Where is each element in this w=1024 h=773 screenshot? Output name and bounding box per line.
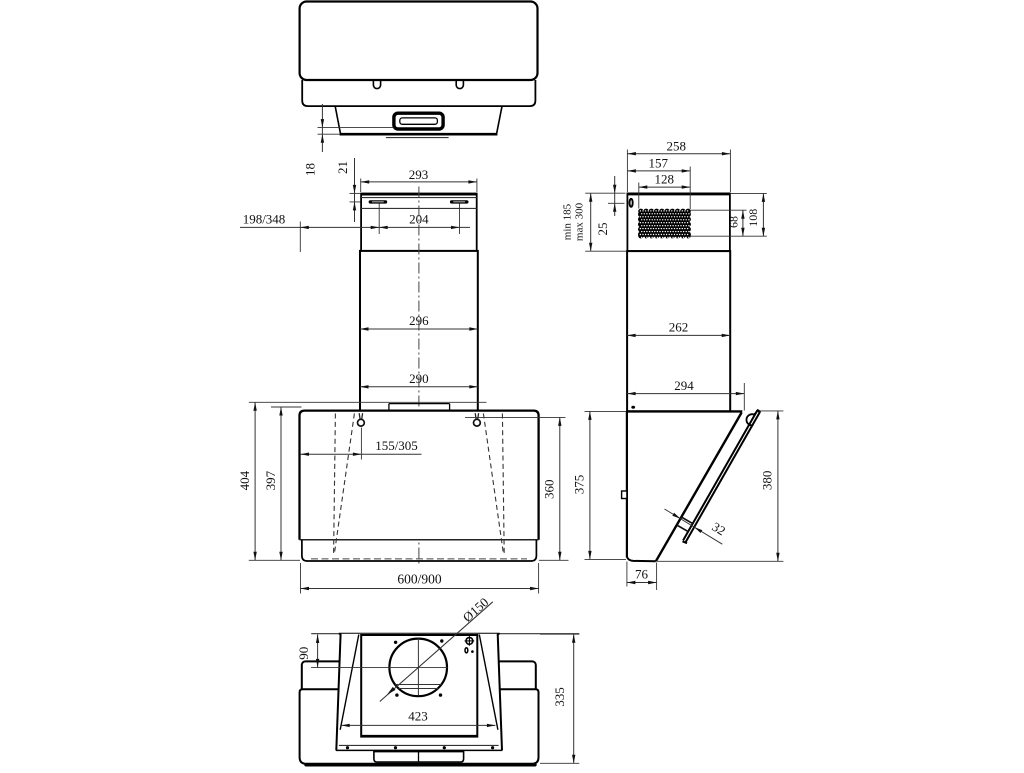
svg-text:600/900: 600/900 (397, 572, 442, 587)
svg-text:375: 375 (572, 475, 587, 495)
svg-text:21: 21 (335, 161, 350, 174)
svg-text:min 185: min 185 (562, 203, 574, 240)
svg-text:76: 76 (635, 567, 649, 582)
svg-text:198/348: 198/348 (243, 211, 286, 226)
svg-text:290: 290 (409, 371, 429, 386)
svg-text:360: 360 (541, 480, 556, 500)
svg-text:68: 68 (727, 216, 741, 228)
svg-text:258: 258 (667, 139, 687, 154)
svg-text:404: 404 (237, 470, 252, 490)
svg-text:204: 204 (409, 212, 429, 227)
svg-text:155/305: 155/305 (375, 438, 418, 453)
svg-text:397: 397 (263, 470, 278, 490)
svg-text:90: 90 (296, 647, 311, 660)
svg-text:296: 296 (409, 313, 429, 328)
svg-text:max 300: max 300 (574, 202, 586, 241)
svg-text:128: 128 (655, 171, 675, 186)
svg-text:18: 18 (303, 163, 318, 176)
svg-text:380: 380 (759, 471, 774, 491)
svg-text:157: 157 (649, 155, 669, 170)
svg-text:423: 423 (408, 709, 428, 724)
svg-text:108: 108 (746, 209, 760, 227)
svg-text:293: 293 (409, 167, 429, 182)
svg-text:294: 294 (674, 378, 694, 393)
svg-text:335: 335 (552, 687, 567, 707)
svg-text:262: 262 (669, 320, 689, 335)
svg-text:25: 25 (595, 223, 610, 236)
